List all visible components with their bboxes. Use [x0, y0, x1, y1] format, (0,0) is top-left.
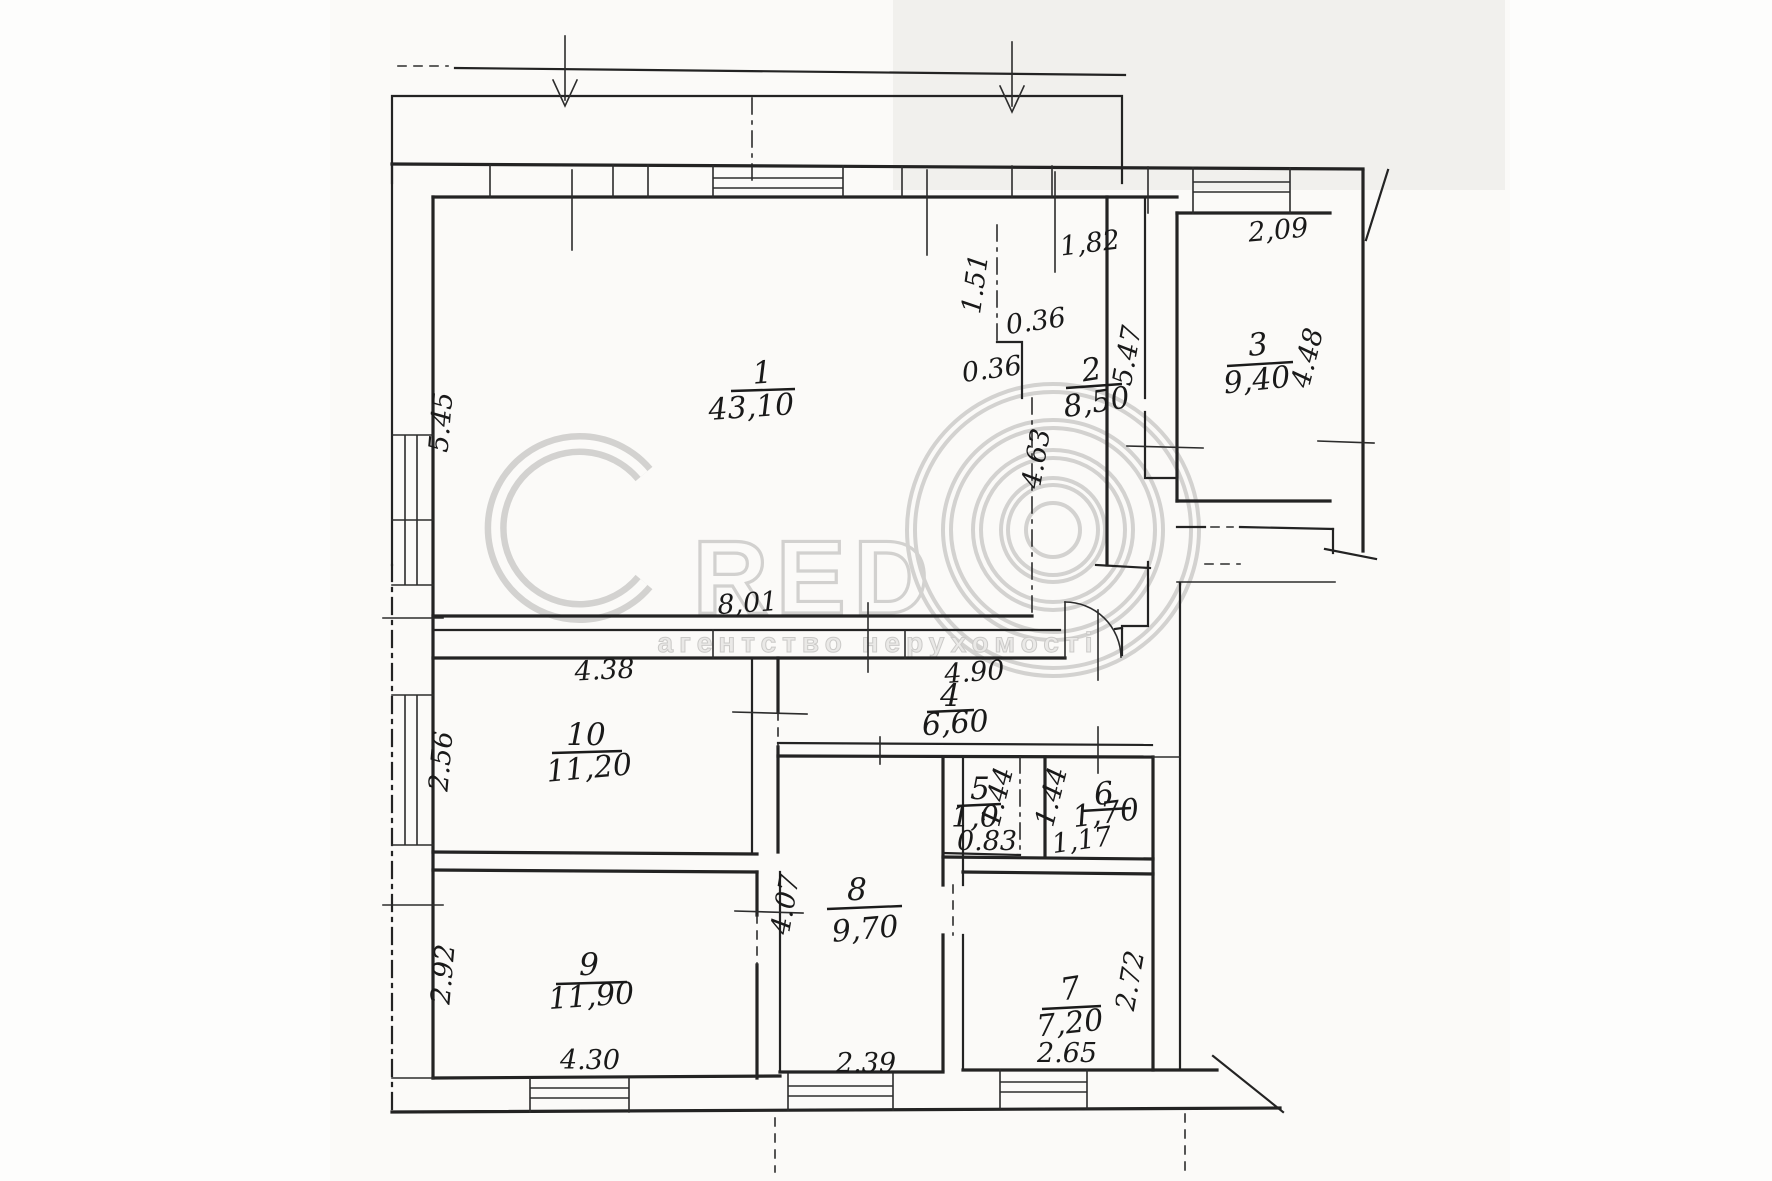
- watermark-subtitle-text: агентство нерухомості: [658, 627, 1099, 658]
- dim-8-01: 8,01: [716, 586, 778, 621]
- svg-text:3: 3: [1246, 326, 1269, 364]
- dim-0-83: 0.83: [957, 826, 1017, 857]
- dim-2-65: 2.65: [1036, 1038, 1097, 1069]
- dim-4-38: 4.38: [573, 653, 636, 687]
- dim-2-39: 2.39: [835, 1048, 896, 1079]
- dim-2-56: 2.56: [423, 730, 459, 794]
- svg-text:8: 8: [847, 872, 867, 908]
- svg-text:11,90: 11,90: [547, 976, 635, 1017]
- svg-text:9: 9: [579, 947, 599, 983]
- dim-2-09: 2,09: [1246, 212, 1310, 248]
- floor-plan-page: RED агентство нерухомості: [0, 0, 1772, 1181]
- svg-text:6,60: 6,60: [921, 704, 990, 744]
- floor-plan-svg: RED агентство нерухомості: [0, 0, 1772, 1181]
- dim-2-92: 2.92: [425, 943, 461, 1007]
- svg-text:1: 1: [751, 354, 773, 391]
- dim-4-90: 4.90: [942, 655, 1005, 690]
- svg-text:9,70: 9,70: [830, 909, 900, 950]
- svg-text:11,20: 11,20: [545, 747, 634, 789]
- dim-4-30: 4.30: [559, 1045, 620, 1076]
- svg-text:9,40: 9,40: [1222, 360, 1292, 402]
- dim-5-45: 5.45: [423, 391, 459, 454]
- svg-text:43,10: 43,10: [706, 387, 795, 428]
- svg-text:10: 10: [566, 717, 605, 753]
